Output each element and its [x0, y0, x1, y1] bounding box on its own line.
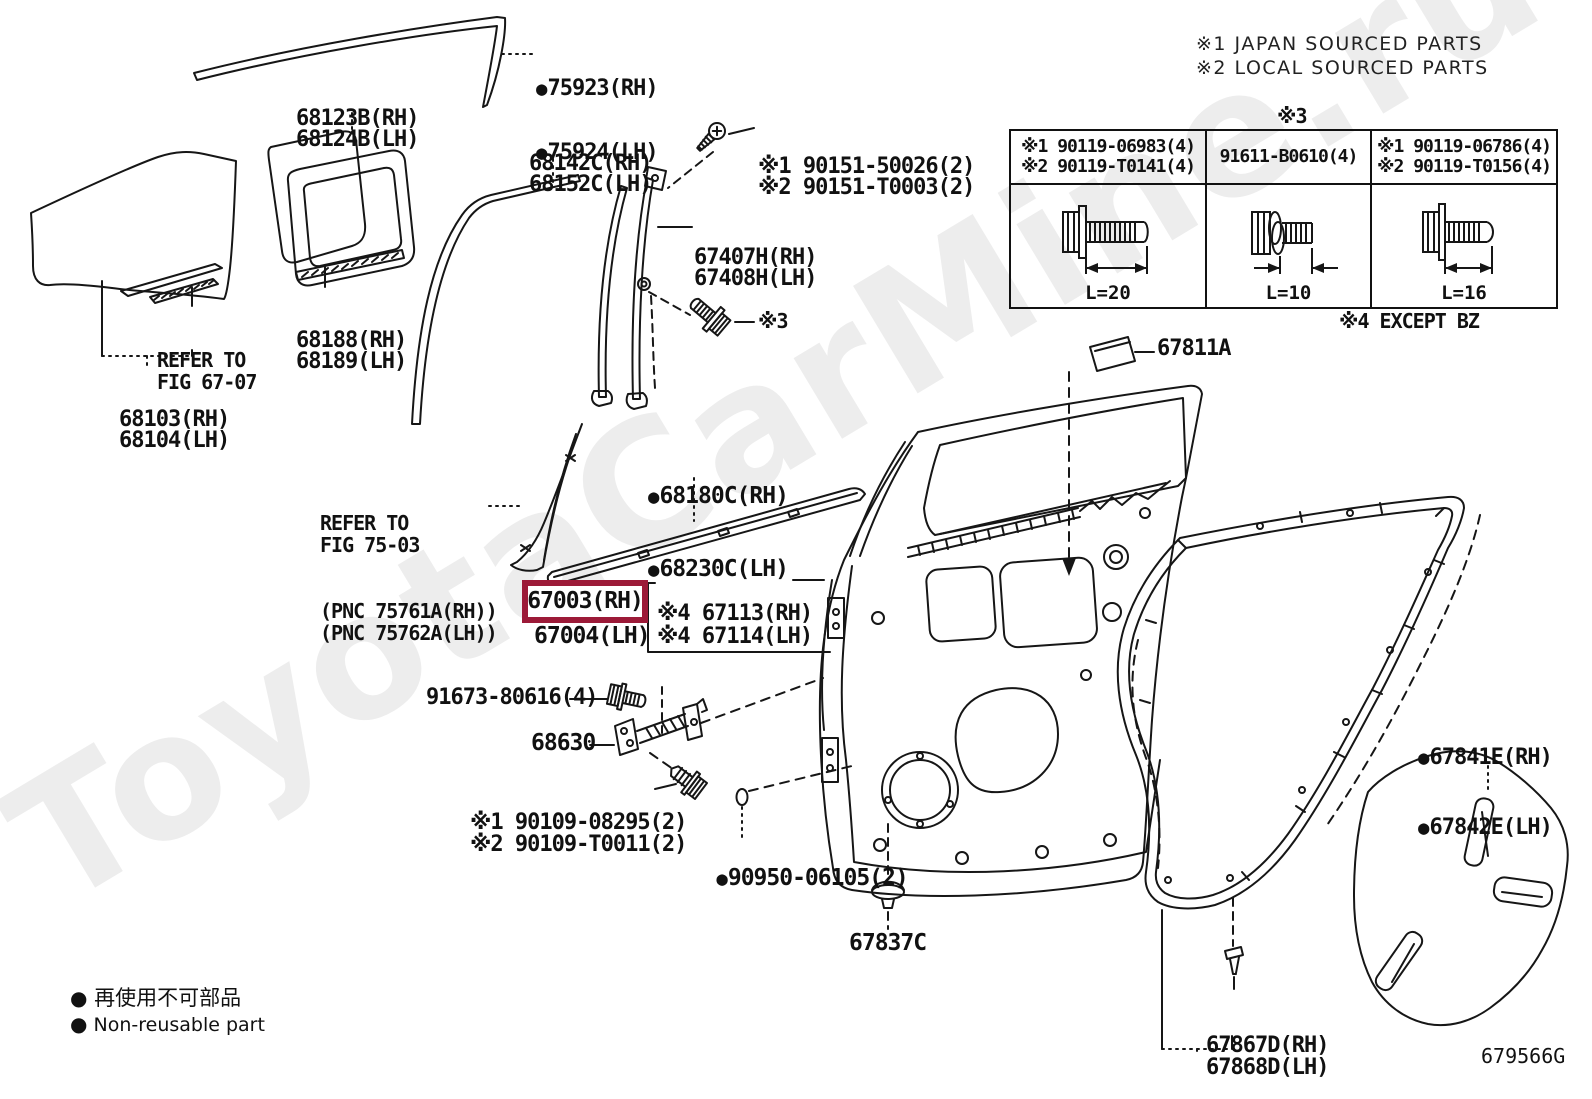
fastener-col1-bolt: L=20	[1011, 185, 1207, 307]
grommet-90950-icon	[737, 789, 748, 805]
non-reusable-bullet: ●	[1418, 817, 1429, 839]
part-label-68188[interactable]: 68188(RH)68189(LH)	[296, 288, 406, 414]
part-label-67407h[interactable]: 67407H(RH)67408H(LH)	[694, 205, 816, 331]
non-reusable-bullet: ●	[536, 78, 547, 100]
door-shell-drawing	[820, 386, 1202, 896]
non-reusable-bullet: ●	[648, 486, 659, 508]
bolt-l20-icon	[1033, 198, 1183, 282]
highlight-box-67003[interactable]: 67003(RH)	[522, 580, 648, 623]
part-label-67841e[interactable]: ●67841E(RH) ●67842E(LH)	[1418, 700, 1552, 886]
bolt-l16-icon	[1389, 198, 1539, 282]
part-label-68142c[interactable]: 68142C(RH)68152C(LH)	[529, 111, 651, 237]
part-label-67004[interactable]: 67004(LH)	[534, 625, 650, 648]
fastener-col2-header[interactable]: 91611-B0610(4)	[1207, 131, 1372, 185]
part-label-68630[interactable]: 68630	[531, 732, 595, 755]
legend-non-reusable-en: ● Non-reusable part	[70, 1012, 265, 1037]
part-label-68103[interactable]: 68103(RH)68104(LH)	[119, 367, 229, 493]
table-ref3-marker: ※3	[1277, 106, 1306, 126]
non-reusable-bullet: ●	[716, 868, 727, 890]
part-label-67811a[interactable]: 67811A	[1157, 338, 1230, 359]
refer-fig-75-03-note: REFER TOFIG 75-03 (PNC 75761A(RH))(PNC 7…	[320, 468, 497, 688]
bolt-l10-icon	[1214, 198, 1364, 282]
clip-67867d-drawing	[1225, 898, 1243, 989]
except-bz-note: ※4 EXCEPT BZ	[1339, 310, 1479, 332]
part-label-90109[interactable]: ※1 90109-08295(2)※2 90109-T0011(2)	[470, 768, 686, 900]
non-reusable-bullet: ●	[1418, 747, 1429, 769]
quarter-weatherstrip-drawing	[489, 424, 582, 571]
part-label-67113[interactable]: ※4 67113(RH)※4 67114(LH)	[657, 556, 812, 694]
fastener-table: ※1 90119-06983(4) ※2 90119-T0141(4) 9161…	[1009, 129, 1558, 309]
fastener-col3-header[interactable]: ※1 90119-06786(4) ※2 90119-T0156(4)	[1372, 131, 1556, 185]
diagram-code: 679566G	[1481, 1046, 1565, 1066]
fastener-col2-bolt: L=10	[1207, 185, 1372, 307]
sourcing-note-japan: ※1 JAPAN SOURCED PARTS	[1196, 32, 1483, 56]
parts-diagram-page: ToyotaCarMine.ru	[0, 0, 1592, 1099]
part-label-67837c[interactable]: 67837C	[849, 932, 926, 955]
non-reusable-bullet: ●	[70, 1012, 87, 1036]
sourcing-note-local: ※2 LOCAL SOURCED PARTS	[1196, 56, 1489, 80]
part-label-68123b[interactable]: 68123B(RH)68124B(LH)	[296, 66, 418, 192]
bolt-91673-icon	[606, 681, 648, 714]
part-label-67871[interactable]: 67871(RH)67872(LH)	[1168, 1058, 1278, 1099]
ref3-marker: ※3	[758, 311, 787, 331]
non-reusable-bullet: ●	[70, 986, 87, 1010]
part-label-90950[interactable]: ●90950-06105(2)	[665, 844, 908, 914]
part-label-91673[interactable]: 91673-80616(4)	[426, 687, 597, 708]
legend-non-reusable-jp: ● 再使用不可部品	[70, 986, 241, 1010]
fastener-col3-bolt: L=16	[1372, 185, 1556, 307]
cover-67811a-drawing	[1090, 337, 1154, 371]
screw-90151-icon	[693, 120, 728, 155]
fastener-col1-header[interactable]: ※1 90119-06983(4) ※2 90119-T0141(4)	[1011, 131, 1207, 185]
